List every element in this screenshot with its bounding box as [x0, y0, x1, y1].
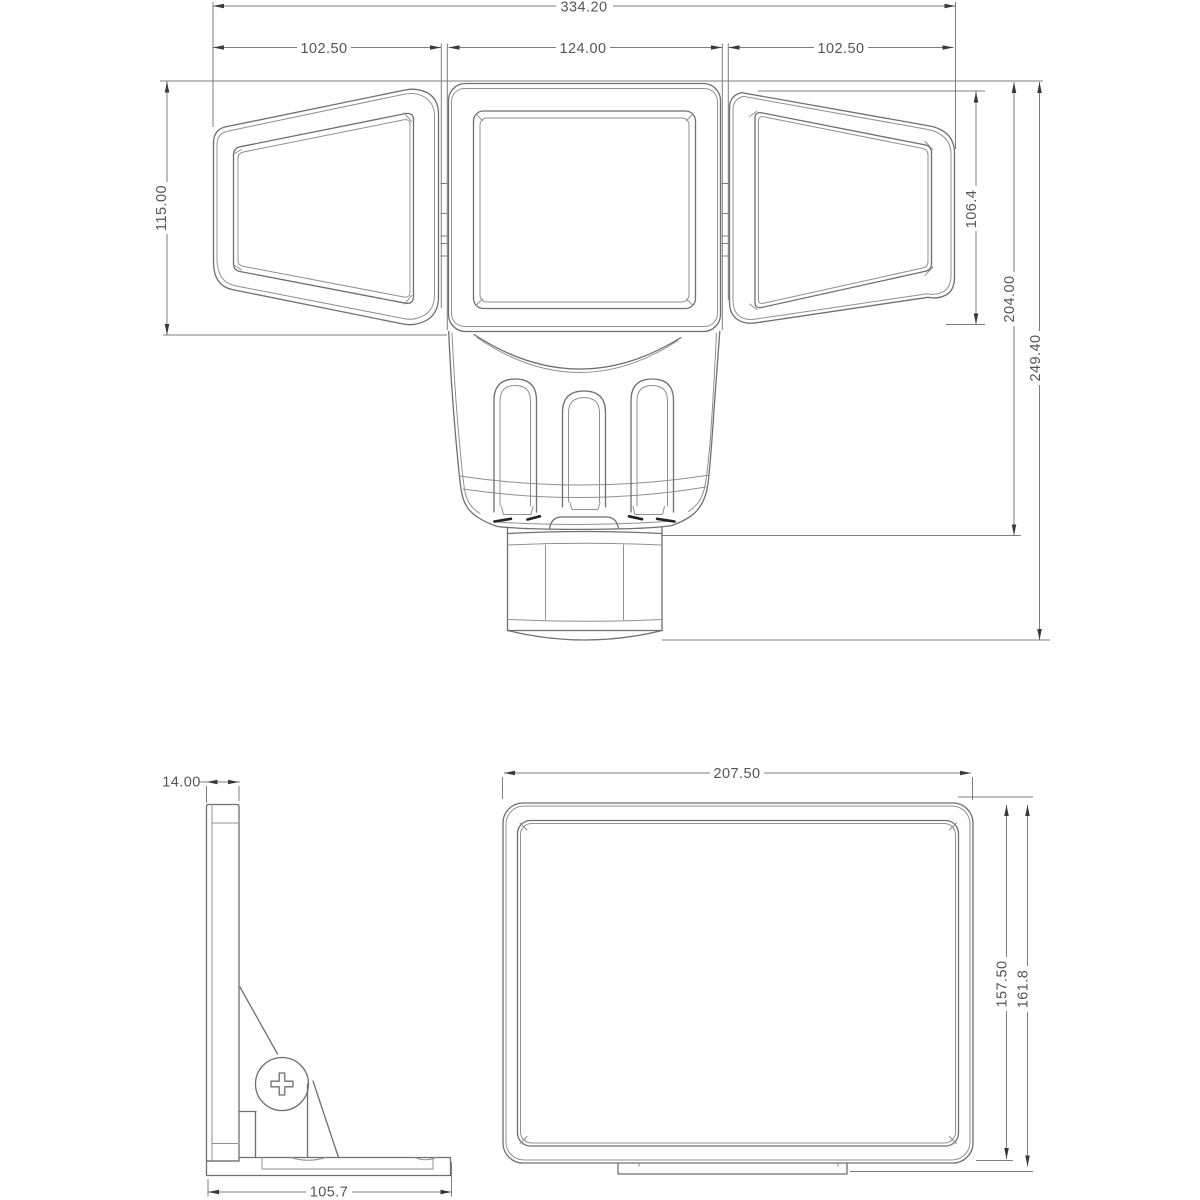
svg-text:115.00: 115.00	[154, 185, 170, 231]
svg-text:124.00: 124.00	[559, 41, 606, 57]
svg-text:105.7: 105.7	[310, 1185, 349, 1200]
svg-text:157.50: 157.50	[995, 960, 1011, 1007]
svg-text:207.50: 207.50	[713, 766, 760, 782]
svg-text:14.00: 14.00	[162, 775, 201, 791]
svg-text:106.4: 106.4	[964, 190, 980, 229]
svg-text:204.00: 204.00	[1002, 275, 1018, 322]
svg-text:102.50: 102.50	[300, 41, 347, 57]
svg-text:334.20: 334.20	[560, 0, 607, 16]
svg-text:249.40: 249.40	[1028, 334, 1044, 381]
svg-text:102.50: 102.50	[817, 41, 864, 57]
svg-text:161.8: 161.8	[1016, 970, 1032, 1009]
